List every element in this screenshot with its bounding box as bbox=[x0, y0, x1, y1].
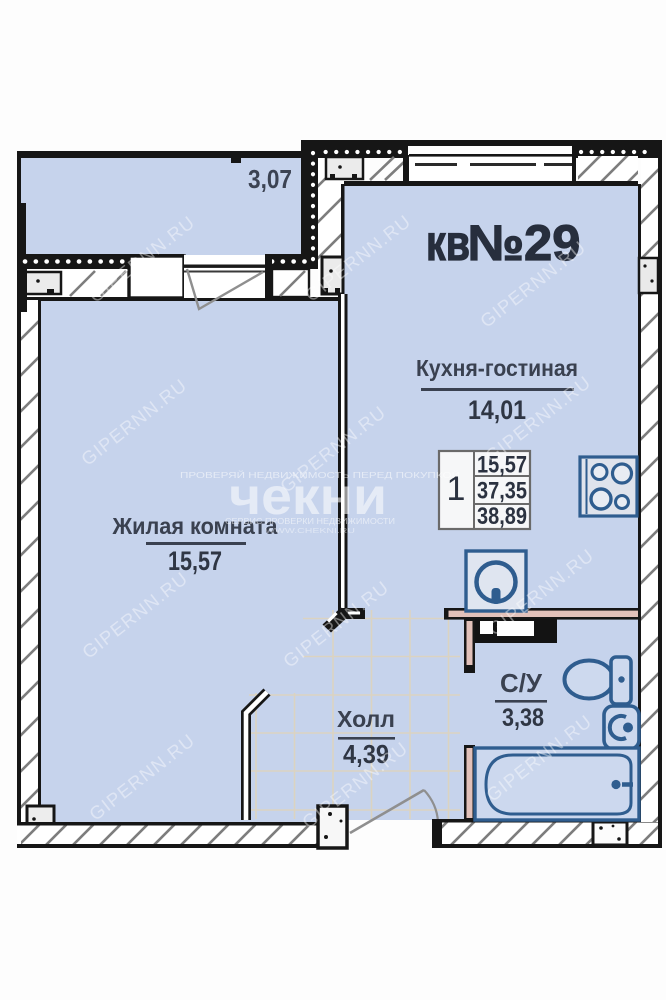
svg-text:Кухня-гостиная: Кухня-гостиная bbox=[416, 355, 578, 381]
svg-text:кв: кв bbox=[426, 215, 470, 271]
svg-text:WWW.CHEKNI.RU: WWW.CHEKNI.RU bbox=[265, 528, 355, 535]
svg-text:С/У: С/У bbox=[500, 668, 543, 698]
svg-text:СЕРВИС ПРОВЕРКИ НЕДВИЖИМОСТИ: СЕРВИС ПРОВЕРКИ НЕДВИЖИМОСТИ bbox=[225, 517, 395, 526]
svg-text:Холл: Холл bbox=[337, 706, 395, 732]
svg-text:3,07: 3,07 bbox=[248, 164, 292, 194]
svg-text:3,38: 3,38 bbox=[502, 704, 544, 732]
svg-text:38,89: 38,89 bbox=[477, 503, 527, 530]
svg-text:37,35: 37,35 bbox=[477, 478, 527, 505]
